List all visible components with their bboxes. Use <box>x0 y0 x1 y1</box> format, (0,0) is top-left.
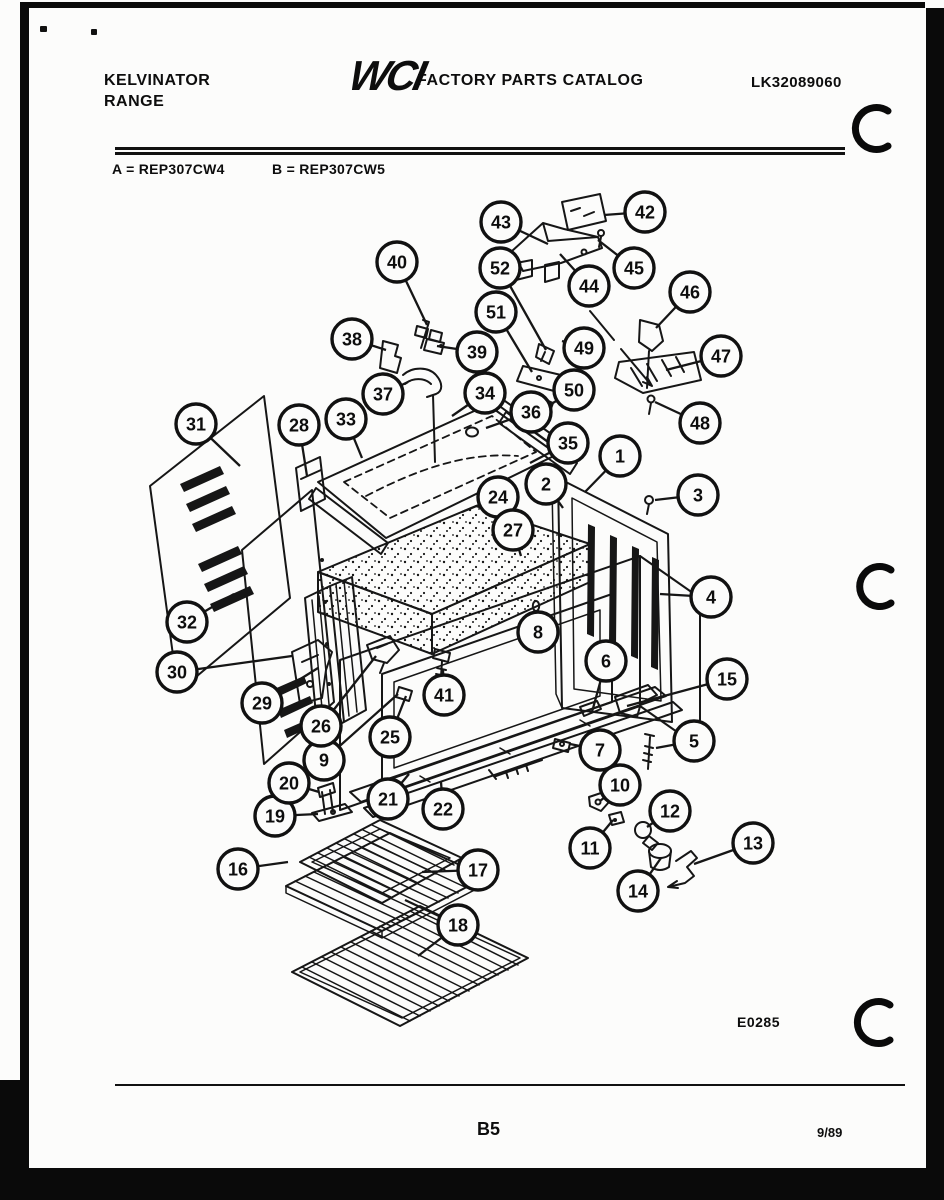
callout-balloon-32: 32 <box>167 602 207 642</box>
callout-number: 42 <box>635 203 655 223</box>
callout-balloon-41: 41 <box>424 675 464 715</box>
callout-number: 25 <box>380 728 400 748</box>
callout-balloon-22: 22 <box>423 789 463 829</box>
callout-number: 30 <box>167 663 187 683</box>
callout-number: 9 <box>319 751 329 771</box>
part-hinge-bracket <box>312 783 352 821</box>
callout-balloon-37: 37 <box>363 374 403 414</box>
callout-balloon-14: 14 <box>618 871 658 911</box>
callout-balloon-16: 16 <box>218 849 258 889</box>
callout-number: 1 <box>615 447 625 467</box>
callout-number: 5 <box>689 732 699 752</box>
callout-number: 17 <box>468 861 488 881</box>
callout-balloon-43: 43 <box>481 202 521 242</box>
callout-balloon-48: 48 <box>680 403 720 443</box>
callout-number: 32 <box>177 613 197 633</box>
callout-balloon-42: 42 <box>625 192 665 232</box>
callout-balloon-2: 2 <box>526 464 566 504</box>
callout-balloon-25: 25 <box>370 717 410 757</box>
callout-balloon-39: 39 <box>457 332 497 372</box>
callout-number: 14 <box>628 882 648 902</box>
callout-number: 19 <box>265 807 285 827</box>
exploded-parts-diagram: 1234567891011121314151617181920212224252… <box>0 0 944 1200</box>
callout-balloon-34: 34 <box>465 373 505 413</box>
callout-balloon-36: 36 <box>511 392 551 432</box>
callout-balloon-26: 26 <box>301 706 341 746</box>
callout-number: 22 <box>433 800 453 820</box>
callout-balloon-12: 12 <box>650 791 690 831</box>
callout-number: 43 <box>491 213 511 233</box>
hole-punch-marks <box>855 108 891 1044</box>
callout-number: 6 <box>601 652 611 672</box>
footer-rule <box>115 1084 905 1086</box>
callout-number: 20 <box>279 774 299 794</box>
callout-number: 11 <box>580 839 599 859</box>
callout-number: 50 <box>564 381 584 401</box>
callout-balloon-28: 28 <box>279 405 319 445</box>
callout-number: 12 <box>660 802 680 822</box>
callout-balloon-38: 38 <box>332 319 372 359</box>
callout-balloon-8: 8 <box>518 612 558 652</box>
callout-number: 7 <box>595 741 605 761</box>
callout-number: 45 <box>624 259 644 279</box>
callout-number: 40 <box>387 253 407 273</box>
callout-balloon-50: 50 <box>554 370 594 410</box>
callout-number: 41 <box>434 686 454 706</box>
callout-balloon-21: 21 <box>368 779 408 819</box>
callout-number: 35 <box>558 434 578 454</box>
callout-number: 18 <box>448 916 468 936</box>
callout-number: 44 <box>579 277 599 297</box>
callout-balloon-10: 10 <box>600 765 640 805</box>
callout-number: 29 <box>252 694 272 714</box>
catalog-page: { "page": { "header": { "brand_line1": "… <box>0 0 944 1200</box>
callout-number: 2 <box>541 475 551 495</box>
callout-balloon-46: 46 <box>670 272 710 312</box>
callout-balloon-1: 1 <box>600 436 640 476</box>
callout-number: 36 <box>521 403 541 423</box>
callout-balloon-30: 30 <box>157 652 197 692</box>
callout-number: 3 <box>693 486 703 506</box>
drawing-number: E0285 <box>737 1014 780 1030</box>
revision-date: 9/89 <box>817 1125 842 1140</box>
callout-balloon-27: 27 <box>493 510 533 550</box>
callout-balloon-3: 3 <box>678 475 718 515</box>
callout-number: 31 <box>186 415 206 435</box>
callout-number: 37 <box>373 385 393 405</box>
callout-balloon-5: 5 <box>674 721 714 761</box>
callout-balloon-35: 35 <box>548 423 588 463</box>
callout-balloon-44: 44 <box>569 266 609 306</box>
part-broiler-pan <box>300 820 462 903</box>
callout-number: 13 <box>743 834 763 854</box>
callout-balloon-47: 47 <box>701 336 741 376</box>
part-rear-side-panel <box>150 396 290 692</box>
callout-number: 15 <box>717 670 737 690</box>
callout-number: 28 <box>289 416 309 436</box>
callout-number: 24 <box>488 488 508 508</box>
callout-balloon-13: 13 <box>733 823 773 863</box>
callout-balloon-7: 7 <box>580 730 620 770</box>
callout-number: 46 <box>680 283 700 303</box>
callout-balloon-11: 11 <box>570 828 610 868</box>
callout-number: 47 <box>711 347 731 367</box>
callout-balloon-29: 29 <box>242 683 282 723</box>
callout-balloon-45: 45 <box>614 248 654 288</box>
callout-number: 27 <box>503 521 523 541</box>
part-rear-brace <box>615 320 701 414</box>
callout-number: 52 <box>490 259 510 279</box>
page-number: B5 <box>477 1119 500 1140</box>
callout-balloon-20: 20 <box>269 763 309 803</box>
callout-balloon-17: 17 <box>458 850 498 890</box>
callout-number: 38 <box>342 330 362 350</box>
callout-number: 51 <box>486 303 506 323</box>
callout-balloon-49: 49 <box>564 328 604 368</box>
callout-number: 8 <box>533 623 543 643</box>
callout-number: 39 <box>467 343 487 363</box>
callout-balloon-40: 40 <box>377 242 417 282</box>
callout-balloon-6: 6 <box>586 641 626 681</box>
callout-number: 4 <box>706 588 716 608</box>
callout-number: 33 <box>336 410 356 430</box>
callout-balloon-31: 31 <box>176 404 216 444</box>
callout-balloon-15: 15 <box>707 659 747 699</box>
callout-number: 49 <box>574 339 594 359</box>
callout-number: 26 <box>311 717 331 737</box>
callout-balloon-52: 52 <box>480 248 520 288</box>
callout-number: 34 <box>475 384 495 404</box>
callout-balloon-4: 4 <box>691 577 731 617</box>
callout-balloon-33: 33 <box>326 399 366 439</box>
callout-number: 16 <box>228 860 248 880</box>
callout-balloon-51: 51 <box>476 292 516 332</box>
callout-number: 48 <box>690 414 710 434</box>
callout-balloon-18: 18 <box>438 905 478 945</box>
callout-number: 21 <box>378 790 398 810</box>
callout-number: 10 <box>610 776 630 796</box>
